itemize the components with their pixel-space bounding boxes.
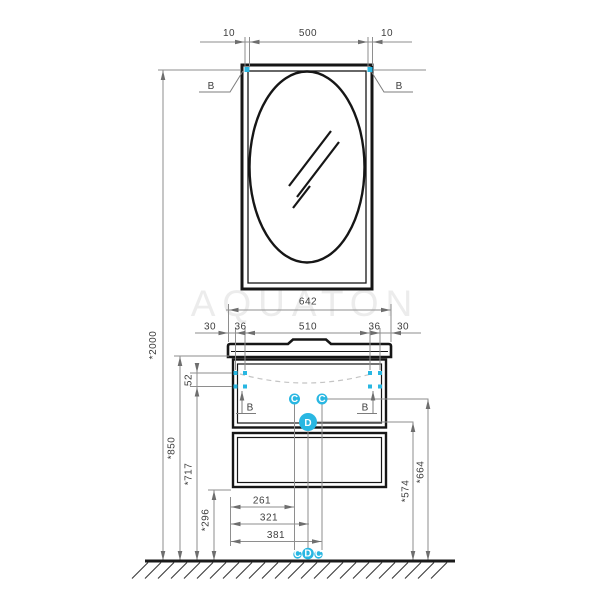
mount-dot: [368, 385, 372, 389]
floor-supply-label: C: [315, 549, 322, 560]
technical-drawing-vanity-mirror: AQUATON: [0, 0, 600, 600]
mount-dot: [234, 385, 238, 389]
supply-marker-label: C: [318, 394, 325, 405]
dim-offset-c-right: 381: [267, 530, 285, 541]
mirror-bracket-left: [245, 67, 250, 72]
mount-dot: [368, 371, 372, 375]
dim-hole-offset-left: 36: [234, 322, 246, 333]
floor-supply-label: C: [294, 549, 301, 560]
bracket-label-cabinet-left: B: [247, 403, 254, 414]
mirror-frame-outer: [242, 65, 372, 289]
drain-marker-label: D: [304, 418, 311, 429]
mount-dot: [378, 371, 382, 375]
lower-drawer: [233, 433, 386, 487]
dim-offset-c-left: 261: [253, 496, 271, 507]
dim-drain-height: *574: [401, 480, 412, 503]
dim-supply-height: *664: [416, 461, 427, 484]
dim-edge-margin-left: 30: [204, 322, 216, 333]
dim-holes-height: *717: [184, 463, 195, 486]
dim-hole-offset-right: 36: [368, 322, 380, 333]
dim-holes-gap: 52: [184, 374, 195, 386]
bracket-label-mirror-left: B: [208, 81, 215, 92]
dim-mirror-right-offset: 10: [381, 28, 393, 39]
bracket-label-cabinet-right: B: [362, 403, 369, 414]
dim-total-height: *2000: [148, 331, 159, 360]
dim-edge-margin-right: 30: [397, 322, 409, 333]
mount-dot: [243, 371, 247, 375]
mount-dot: [378, 385, 382, 389]
floor-drain-label: D: [304, 549, 311, 560]
dim-counter-height: *850: [167, 437, 178, 460]
mirror: [242, 65, 372, 289]
dim-offset-d: 321: [260, 513, 278, 524]
bracket-label-mirror-right: B: [396, 81, 403, 92]
mount-dot: [234, 371, 238, 375]
dim-mirror-width: 500: [299, 28, 317, 39]
supply-marker-label: C: [291, 394, 298, 405]
dim-bottom-clearance: *296: [201, 509, 212, 532]
dim-hole-spacing: 510: [299, 322, 317, 333]
dim-cabinet-width: 642: [299, 297, 317, 308]
mirror-bracket-right: [368, 67, 373, 72]
mount-dot: [243, 385, 247, 389]
dim-mirror-left-offset: 10: [223, 28, 235, 39]
